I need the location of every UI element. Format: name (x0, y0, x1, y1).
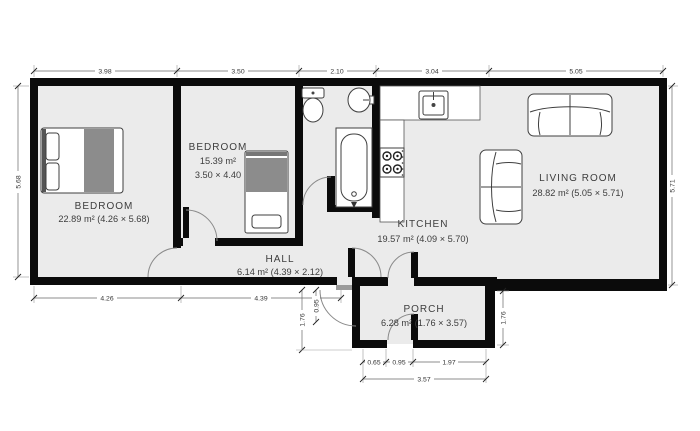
burner-center (386, 155, 388, 157)
wall-bedroom2-bottom-stub (173, 238, 183, 246)
stove-knob (402, 150, 404, 152)
dim-top-2: 3.50 (231, 69, 244, 76)
dim-porch-bottom-total: 3.57 (417, 377, 430, 384)
dim-left: 5.68 (13, 83, 29, 280)
floor-plan: BEDROOM 22.89 m² (4.26 × 5.68) BEDROOM 1… (0, 0, 700, 431)
double-bed-blanket (84, 129, 114, 192)
kitchen-area: 19.57 m² (4.09 × 5.70) (377, 234, 468, 244)
living-room-label: LIVING ROOM (539, 173, 617, 184)
dim-bottom-1: 4.26 (100, 296, 113, 303)
wall-porch-left (352, 285, 360, 348)
dim-right-height: 5.71 (669, 179, 676, 192)
dim-bottom: 4.26 4.39 (31, 286, 344, 303)
dim-right: 5.71 (668, 83, 678, 288)
dim-porch-bottom-2: 0.95 (392, 360, 405, 367)
sofa-large (528, 94, 612, 136)
dim-left-height: 5.68 (15, 175, 22, 188)
wall-porch-top-left (352, 277, 388, 286)
wall-right (659, 78, 667, 291)
single-bed-blanket (246, 158, 287, 192)
hall-kitchen-door-leaf (348, 248, 355, 277)
single-bed (245, 151, 288, 233)
wall-porch-right (485, 284, 495, 348)
living-room-area: 28.82 m² (5.05 × 5.71) (532, 188, 623, 198)
wall-bedroom-divider (173, 86, 181, 248)
porch-label: PORCH (403, 304, 444, 315)
burner-center (396, 168, 398, 170)
bedroom1-label: BEDROOM (75, 201, 134, 212)
wall-bedroom2-bath-divider (295, 86, 303, 246)
stove (380, 148, 404, 177)
burner-center (396, 155, 398, 157)
floor-plan-canvas: BEDROOM 22.89 m² (4.26 × 5.68) BEDROOM 1… (0, 0, 700, 431)
bedroom1-area: 22.89 m² (4.26 × 5.68) (58, 214, 149, 224)
hall-label: HALL (265, 254, 294, 265)
dim-top-4: 3.04 (425, 69, 438, 76)
entry-door-jamb (336, 285, 354, 290)
dim-porch-left-height: 1.76 (299, 313, 306, 326)
stove-knob (402, 156, 404, 158)
stove-knob (402, 174, 404, 176)
stove-knob (402, 168, 404, 170)
sofa-small (480, 150, 522, 224)
hall-area: 6.14 m² (4.39 × 2.12) (237, 267, 323, 277)
dim-top: 3.98 3.50 2.10 3.04 5.05 (31, 65, 666, 77)
hall-exterior-door-arc (320, 290, 356, 326)
porch-area: 6.28 m² (1.76 × 3.57) (381, 318, 467, 328)
single-bed-headboard (246, 152, 287, 156)
toilet (302, 88, 324, 122)
wall-left (30, 78, 38, 285)
wall-bedroom2-bottom (215, 238, 303, 246)
bedroom2-door-leaf (183, 207, 189, 238)
dim-porch-left-door: 0.95 (313, 299, 320, 312)
kitchen-porch-door-leaf (411, 252, 418, 278)
wall-porch-bottom-right (413, 340, 493, 348)
dim-porch-left: 1.76 0.95 (296, 287, 352, 353)
dim-porch-right-height: 1.76 (500, 311, 507, 324)
dim-top-1: 3.98 (98, 69, 111, 76)
bathtub (336, 128, 372, 208)
bath-door-leaf (327, 176, 335, 212)
double-bed-headboard (42, 129, 46, 192)
dim-bottom-2: 4.39 (254, 296, 267, 303)
dim-porch-bottom-3: 1.97 (442, 360, 455, 367)
kitchen-drain (432, 103, 436, 107)
wall-kitchen-bottom (414, 277, 497, 286)
kitchen-label: KITCHEN (398, 219, 449, 230)
dim-top-3: 2.10 (330, 69, 343, 76)
kitchen-sink (419, 91, 448, 119)
double-bed (41, 128, 123, 193)
toilet-button (312, 92, 315, 95)
bedroom2-area: 15.39 m² (200, 156, 236, 166)
burner-center (386, 168, 388, 170)
bedroom2-size: 3.50 × 4.40 (195, 170, 241, 180)
dim-porch-right: 1.76 (497, 288, 509, 348)
bedroom2-label: BEDROOM (189, 142, 248, 153)
dim-porch-bottom: 0.65 0.95 1.97 3.57 (360, 349, 489, 384)
stove-knob (402, 162, 404, 164)
toilet-bowl (303, 98, 323, 122)
dim-top-5: 5.05 (569, 69, 582, 76)
pillow (252, 215, 281, 228)
wall-porch-bottom-left (352, 340, 387, 348)
dim-porch-bottom-1: 0.65 (367, 360, 380, 367)
wall-bath-kitchen-divider (372, 86, 380, 218)
wall-top (30, 78, 667, 86)
wall-living-bottom (490, 279, 667, 291)
pillow (46, 133, 59, 160)
pillow (46, 163, 59, 190)
wall-bottom-left (30, 277, 337, 285)
